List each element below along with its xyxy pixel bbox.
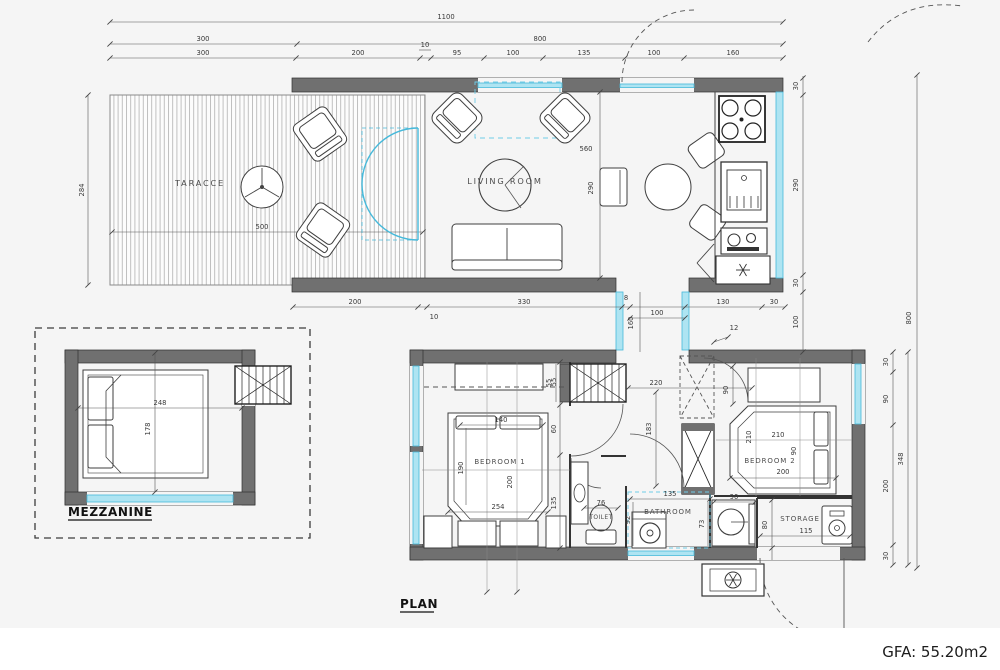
dim-kitchen-290: 290 (792, 179, 800, 192)
dim-bed1-base: 254 (492, 503, 505, 511)
entry-door-swing (622, 10, 694, 82)
dim-toilet-w: 76 (597, 499, 606, 507)
dim-corridor-right: 100 (792, 316, 800, 329)
dim-bottom-30: 30 (770, 298, 779, 306)
wardrobe-hall (682, 424, 714, 494)
dim-vanity-h: 73 (698, 520, 706, 529)
dim-right-200: 200 (882, 480, 890, 493)
dim-top3-95: 95 (453, 49, 462, 57)
dim-right-30a: 30 (882, 358, 890, 367)
dim-right-30b: 30 (882, 552, 890, 561)
dim-total-width: 1100 (437, 13, 454, 21)
dim-bath-w: 135 (664, 490, 677, 498)
dim-mezz-h: 178 (144, 423, 152, 436)
dim-bed1-side: 190 (457, 462, 465, 475)
dim-b1-60: 60 (550, 425, 558, 434)
dim-living-h: 290 (587, 182, 595, 195)
dim-corridor-h: 160 (627, 317, 635, 330)
dim-site-height: 800 (905, 312, 913, 325)
toilet-fixtures (571, 462, 616, 544)
kitchen (697, 92, 770, 284)
dim-mezz-w: 248 (154, 399, 167, 407)
dim-terrace-width: 500 (256, 223, 269, 231)
bedroom1-window-bottom (413, 452, 419, 544)
dim-right-total: 348 (897, 453, 905, 466)
dim-corridor-note: 12 (730, 324, 739, 332)
room-label-bedroom2: BEDROOM 2 (744, 457, 795, 465)
kitchen-window-wall (776, 92, 783, 278)
dim-living-w: 560 (580, 145, 593, 153)
stairs-main (560, 364, 626, 402)
dim-bed2-side: 210 (745, 431, 753, 444)
entry-door-glass (620, 84, 694, 88)
dim-vanity-w: 90 (730, 493, 739, 501)
dim-bottom-130: 130 (717, 298, 730, 306)
terrace-table (241, 166, 283, 208)
oven (721, 162, 767, 222)
dim-top3-100b: 100 (648, 49, 661, 57)
dim-right-90: 90 (882, 395, 890, 404)
dim-bottom-330: 330 (518, 298, 531, 306)
bedroom1-window-top (413, 366, 419, 446)
dim-hall-h: 183 (645, 423, 653, 436)
dim-storage-h: 80 (761, 521, 769, 530)
room-label-bathroom: BATHROOM (644, 508, 692, 516)
toilet-tank (586, 530, 616, 544)
coffee-machine (721, 228, 767, 254)
dim-top3-135: 135 (578, 49, 591, 57)
stairs-mezzanine (235, 366, 291, 404)
dim-terrace-height: 284 (78, 184, 86, 197)
cooktop (719, 96, 765, 142)
dim-top3-160: 160 (727, 49, 740, 57)
dim-bed1-w: 140 (495, 416, 508, 424)
dim-kitchen-30b: 30 (792, 279, 800, 288)
dim-bottom-200: 200 (349, 298, 362, 306)
dim-bed2-base: 200 (777, 468, 790, 476)
site-arc (868, 5, 962, 42)
dim-bottom-8: 8 (624, 294, 628, 302)
room-label-storage: STORAGE (780, 515, 820, 523)
dining-set (600, 131, 728, 242)
room-label-bedroom1: BEDROOM 1 (474, 458, 525, 466)
mezzanine-title: MEZZANINE (68, 505, 153, 519)
room-label-terrace: TARACCE (174, 178, 225, 188)
dim-top2-800: 800 (534, 35, 547, 43)
dim-bed1-len: 200 (506, 476, 514, 489)
closet-dashed (680, 356, 714, 418)
mezzanine-window (87, 495, 233, 502)
living-window (478, 83, 562, 88)
wardrobe-bedroom1 (455, 364, 543, 390)
dim-bottom-10: 10 (430, 313, 439, 321)
dim-bed2-w: 210 (772, 431, 785, 439)
dim-bath-h: 92 (624, 516, 632, 525)
dim-top3-200: 200 (352, 49, 365, 57)
dim-storage-w: 115 (800, 527, 813, 535)
dim-b1-135: 135 (550, 497, 558, 510)
shelf-bedroom2 (748, 368, 820, 402)
dim-stairs-len: 220 (650, 379, 663, 387)
dim-bed2-top: 90 (722, 386, 730, 395)
dim-kitchen-30a: 30 (792, 82, 800, 91)
dim-corridor-w: 100 (651, 309, 664, 317)
bedroom1-furniture (424, 364, 566, 548)
vanity (712, 500, 755, 546)
bedroom2-window (855, 364, 861, 424)
armchair-left (429, 90, 486, 147)
gfa-label: GFA: 55.20m2 (882, 643, 988, 661)
title-strip (0, 628, 1000, 670)
sofa (452, 224, 562, 270)
room-label-living: LIVING ROOM (467, 176, 543, 186)
plan-title: PLAN (400, 597, 438, 611)
dim-top3-10: 10 (421, 41, 430, 49)
ac-unit (702, 564, 764, 596)
floor-plan-sheet: 1100 300 800 300 200 10 95 100 135 100 1… (0, 0, 1000, 670)
dim-stairs-w: 55 (545, 379, 553, 388)
dim-bed2-mid: 90 (790, 447, 798, 456)
dim-top3-300: 300 (197, 49, 210, 57)
bathroom-window (628, 551, 694, 556)
dim-top3-100a: 100 (507, 49, 520, 57)
dim-top2-300: 300 (197, 35, 210, 43)
room-label-toilet: TOILET (588, 514, 612, 521)
